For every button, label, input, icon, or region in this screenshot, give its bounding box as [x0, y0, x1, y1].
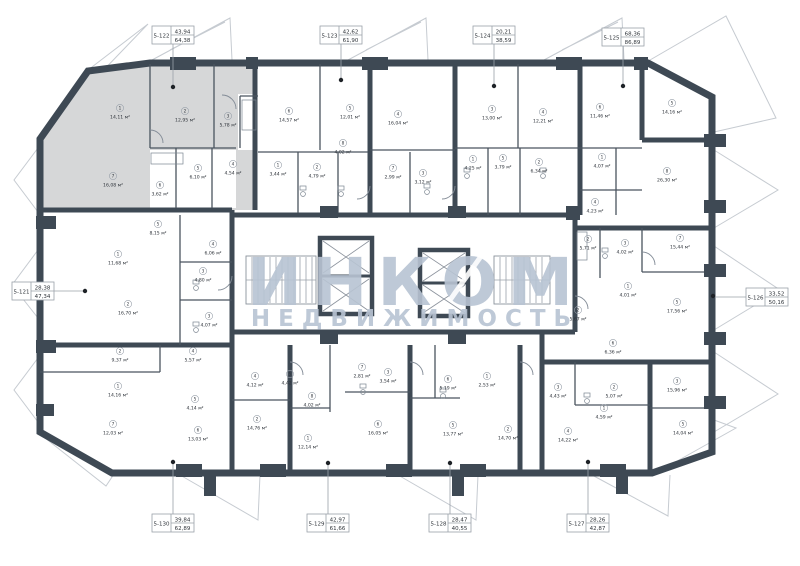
room-label: 214,70 м²: [498, 425, 518, 441]
svg-text:50,16: 50,16: [769, 300, 785, 306]
svg-text:4,02 м²: 4,02 м²: [335, 150, 352, 156]
room-label: 24,79 м²: [309, 163, 326, 179]
svg-text:14,16 м²: 14,16 м²: [108, 393, 128, 399]
room-label: 65,19 м²: [440, 375, 457, 391]
svg-text:11,68 м²: 11,68 м²: [108, 261, 128, 267]
svg-text:5-128: 5-128: [431, 521, 447, 527]
svg-text:6: 6: [377, 422, 380, 427]
room-label: 616,05 м²: [368, 420, 388, 436]
svg-text:4,02 м²: 4,02 м²: [304, 403, 321, 409]
svg-text:14,57 м²: 14,57 м²: [279, 118, 299, 124]
svg-text:5,19 м²: 5,19 м²: [440, 386, 457, 392]
svg-text:5: 5: [197, 166, 200, 171]
unit-callout-5-128[interactable]: 5-12828,4740,55: [429, 514, 471, 532]
svg-text:1: 1: [277, 163, 280, 168]
svg-text:20,21: 20,21: [496, 29, 512, 35]
svg-text:12,21 м²: 12,21 м²: [533, 119, 553, 125]
svg-text:4,01 м²: 4,01 м²: [620, 293, 637, 299]
svg-text:3: 3: [557, 385, 560, 390]
svg-text:3: 3: [676, 379, 679, 384]
room-label: 14,25 м²: [465, 155, 482, 171]
svg-text:62,89: 62,89: [175, 526, 191, 532]
room-label: 58,15 м²: [150, 220, 167, 236]
room-label: 46,06 м²: [205, 240, 222, 256]
svg-text:6: 6: [447, 377, 450, 382]
svg-text:1: 1: [627, 284, 630, 289]
svg-text:3,79 м²: 3,79 м²: [495, 165, 512, 171]
svg-text:4: 4: [254, 374, 257, 379]
svg-text:17,56 м²: 17,56 м²: [667, 309, 687, 315]
svg-text:2: 2: [316, 165, 319, 170]
room-label: 84,02 м²: [335, 139, 352, 155]
svg-text:6: 6: [612, 341, 615, 346]
svg-text:4,54 м²: 4,54 м²: [225, 171, 242, 177]
svg-text:13,03 м²: 13,03 м²: [188, 437, 208, 443]
svg-text:3: 3: [227, 114, 230, 119]
room-label: 712,03 м²: [103, 420, 123, 436]
unit-callout-5-127[interactable]: 5-12728,2642,87: [567, 514, 609, 532]
svg-text:1: 1: [603, 406, 606, 411]
svg-text:5: 5: [502, 156, 505, 161]
floor-plan: 114,11 м² 212,95 м² 35,78 м² 716,08 м² 6…: [0, 0, 800, 566]
svg-text:14,70 м²: 14,70 м²: [498, 436, 518, 442]
svg-text:2: 2: [507, 427, 510, 432]
svg-text:4: 4: [567, 429, 570, 434]
svg-text:1: 1: [307, 436, 310, 441]
room-label: 14,59 м²: [596, 404, 613, 420]
unit-callout-5-123[interactable]: 5-12342,6261,90: [320, 26, 362, 44]
unit-callout-5-121[interactable]: 5-12128,3847,34: [12, 282, 54, 300]
svg-text:61,90: 61,90: [343, 38, 359, 44]
room-label: 513,77 м²: [443, 421, 463, 437]
room-label: 14,01 м²: [620, 282, 637, 298]
svg-text:6: 6: [159, 183, 162, 188]
svg-text:14,16 м²: 14,16 м²: [662, 110, 682, 116]
room-label: 14,07 м²: [594, 153, 611, 169]
svg-text:5-123: 5-123: [322, 33, 338, 39]
svg-text:9,37 м²: 9,37 м²: [112, 358, 129, 364]
svg-text:14,11 м²: 14,11 м²: [110, 115, 130, 121]
room-label: 214,76 м²: [247, 415, 267, 431]
room-label: 45,57 м²: [185, 347, 202, 363]
svg-text:42,62: 42,62: [343, 29, 359, 35]
svg-text:2: 2: [613, 385, 616, 390]
svg-text:1: 1: [119, 106, 122, 111]
svg-text:43,94: 43,94: [175, 29, 191, 35]
svg-text:4,14 м²: 4,14 м²: [187, 406, 204, 412]
svg-text:1: 1: [117, 252, 120, 257]
svg-text:5: 5: [452, 423, 455, 428]
svg-text:5: 5: [289, 372, 292, 377]
svg-text:4: 4: [192, 349, 195, 354]
room-label: 12,53 м²: [479, 372, 496, 388]
svg-text:4,79 м²: 4,79 м²: [309, 174, 326, 180]
svg-text:5-124: 5-124: [475, 33, 491, 39]
svg-text:26,30 м²: 26,30 м²: [657, 178, 677, 184]
room-label: 512,01 м²: [340, 104, 360, 120]
svg-text:3,62 м²: 3,62 м²: [152, 192, 169, 198]
svg-text:4: 4: [212, 242, 215, 247]
svg-text:42,97: 42,97: [330, 517, 346, 523]
svg-text:6: 6: [599, 105, 602, 110]
svg-text:7: 7: [679, 236, 682, 241]
svg-text:4,12 м²: 4,12 м²: [247, 383, 264, 389]
svg-text:5,78 м²: 5,78 м²: [220, 123, 237, 129]
room-label: 614,57 м²: [279, 107, 299, 123]
svg-text:11,46 м²: 11,46 м²: [590, 114, 610, 120]
svg-text:3,54 м²: 3,54 м²: [380, 379, 397, 385]
room-label: 412,21 м²: [533, 108, 553, 124]
svg-text:5: 5: [676, 300, 679, 305]
svg-text:4: 4: [397, 112, 400, 117]
room-label: 613,03 м²: [188, 426, 208, 442]
unit-callout-5-124[interactable]: 5-12420,2138,59: [473, 26, 515, 44]
room-label: 66,36 м²: [605, 339, 622, 355]
floor-plan-page: 114,11 м² 212,95 м² 35,78 м² 716,08 м² 6…: [0, 0, 800, 566]
room-label: 25,07 м²: [606, 383, 623, 399]
room-label: 72,81 м²: [354, 363, 371, 379]
svg-text:12,95 м²: 12,95 м²: [175, 118, 195, 124]
svg-text:2: 2: [127, 302, 130, 307]
svg-text:8: 8: [666, 169, 669, 174]
svg-text:2,53 м²: 2,53 м²: [479, 383, 496, 389]
svg-text:5-129: 5-129: [309, 521, 325, 527]
svg-text:61,66: 61,66: [330, 526, 346, 532]
room-label: 315,96 м²: [667, 377, 687, 393]
svg-text:86,89: 86,89: [625, 40, 641, 46]
svg-text:3,12 м²: 3,12 м²: [415, 180, 432, 186]
svg-text:15,96 м²: 15,96 м²: [667, 388, 687, 394]
svg-text:4: 4: [232, 162, 235, 167]
room-label: 44,12 м²: [247, 372, 264, 388]
svg-text:16,04 м²: 16,04 м²: [388, 121, 408, 127]
svg-text:16,08 м²: 16,08 м²: [103, 183, 123, 189]
svg-text:38,59: 38,59: [496, 38, 512, 44]
svg-text:6: 6: [288, 109, 291, 114]
svg-text:7: 7: [361, 365, 364, 370]
svg-text:5-125: 5-125: [604, 35, 620, 41]
svg-text:5,07 м²: 5,07 м²: [606, 394, 623, 400]
room-label: 53,79 м²: [495, 154, 512, 170]
svg-text:64,38: 64,38: [175, 38, 191, 44]
svg-text:4,59 м²: 4,59 м²: [596, 415, 613, 421]
svg-text:14,22 м²: 14,22 м²: [558, 438, 578, 444]
unit-callout-5-125[interactable]: 5-12568,3686,89: [602, 28, 644, 46]
svg-text:6,10 м²: 6,10 м²: [190, 175, 207, 181]
svg-text:4: 4: [542, 110, 545, 115]
svg-text:4,25 м²: 4,25 м²: [465, 166, 482, 172]
room-label: 414,22 м²: [558, 427, 578, 443]
room-label: 826,30 м²: [657, 167, 677, 183]
svg-text:2: 2: [184, 109, 187, 114]
svg-text:6,34 м²: 6,34 м²: [531, 169, 548, 175]
svg-text:42,87: 42,87: [590, 526, 606, 532]
svg-text:2,99 м²: 2,99 м²: [385, 175, 402, 181]
svg-text:28,26: 28,26: [590, 517, 606, 523]
svg-text:5-122: 5-122: [154, 33, 170, 39]
unit-callout-5-130[interactable]: 5-13039,8462,89: [152, 514, 194, 532]
svg-text:5,57 м²: 5,57 м²: [185, 358, 202, 364]
svg-text:7: 7: [112, 422, 115, 427]
room-label: 72,99 м²: [385, 164, 402, 180]
svg-text:6: 6: [197, 428, 200, 433]
room-label: 514,16 м²: [662, 99, 682, 115]
svg-text:1: 1: [472, 157, 475, 162]
watermark: ИНКОМ НЕДВИЖИМОСТЬ: [247, 244, 583, 332]
room-label: 416,04 м²: [388, 110, 408, 126]
room-label: 313,00 м²: [482, 105, 502, 121]
svg-text:16,05 м²: 16,05 м²: [368, 431, 388, 437]
svg-text:12,01 м²: 12,01 м²: [340, 115, 360, 121]
svg-text:15,44 м²: 15,44 м²: [670, 245, 690, 251]
room-label: 715,44 м²: [670, 234, 690, 250]
room-label: 111,68 м²: [108, 250, 128, 266]
svg-text:3: 3: [491, 107, 494, 112]
svg-text:4,02 м²: 4,02 м²: [617, 250, 634, 256]
svg-text:НЕДВИЖИМОСТЬ: НЕДВИЖИМОСТЬ: [251, 306, 579, 332]
room-label: 517,56 м²: [667, 298, 687, 314]
svg-text:5: 5: [671, 101, 674, 106]
svg-text:3,44 м²: 3,44 м²: [270, 172, 287, 178]
svg-text:8: 8: [342, 141, 345, 146]
svg-text:3: 3: [202, 269, 205, 274]
svg-text:4,23 м²: 4,23 м²: [587, 209, 604, 215]
svg-text:5-121: 5-121: [14, 289, 30, 295]
svg-text:28,38: 28,38: [35, 285, 51, 291]
room-label: 34,02 м²: [617, 239, 634, 255]
svg-text:5: 5: [194, 397, 197, 402]
svg-text:5-130: 5-130: [154, 521, 170, 527]
svg-text:2: 2: [119, 349, 122, 354]
svg-text:5-127: 5-127: [569, 521, 585, 527]
svg-text:4: 4: [594, 200, 597, 205]
svg-text:4,07 м²: 4,07 м²: [594, 164, 611, 170]
svg-text:16,70 м²: 16,70 м²: [118, 311, 138, 317]
room-label: 33,54 м²: [380, 368, 397, 384]
svg-text:39,84: 39,84: [175, 517, 191, 523]
svg-text:4,07 м²: 4,07 м²: [201, 323, 218, 329]
svg-text:3: 3: [624, 241, 627, 246]
room-label: 29,37 м²: [112, 347, 129, 363]
svg-text:8: 8: [311, 394, 314, 399]
unit-callout-5-126[interactable]: 5-12633,5250,16: [746, 288, 788, 306]
room-label: 34,43 м²: [550, 383, 567, 399]
room-label: 33,12 м²: [415, 169, 432, 185]
svg-text:1: 1: [117, 384, 120, 389]
svg-text:6,36 м²: 6,36 м²: [605, 350, 622, 356]
room-label: 54,14 м²: [187, 395, 204, 411]
svg-text:4,43 м²: 4,43 м²: [550, 394, 567, 400]
svg-text:4,80 м²: 4,80 м²: [195, 278, 212, 284]
svg-text:5: 5: [682, 422, 685, 427]
svg-text:5-126: 5-126: [748, 295, 764, 301]
room-label: 514,04 м²: [673, 420, 693, 436]
room-label: 34,80 м²: [195, 267, 212, 283]
unit-callout-5-122[interactable]: 5-12243,9464,38: [152, 26, 194, 44]
svg-text:3: 3: [208, 314, 211, 319]
room-label: 112,14 м²: [298, 434, 318, 450]
room-label: 84,02 м²: [304, 392, 321, 408]
room-label: 44,23 м²: [587, 198, 604, 214]
svg-text:33,52: 33,52: [769, 291, 785, 297]
svg-text:2: 2: [538, 160, 541, 165]
room-label: 26,34 м²: [531, 158, 548, 174]
svg-text:40,55: 40,55: [452, 526, 468, 532]
room-label: 114,16 м²: [108, 382, 128, 398]
room-label: 34,07 м²: [201, 312, 218, 328]
svg-text:68,36: 68,36: [625, 31, 641, 37]
svg-text:4,42 м²: 4,42 м²: [282, 381, 299, 387]
svg-text:47,34: 47,34: [35, 294, 51, 300]
svg-text:6,06 м²: 6,06 м²: [205, 251, 222, 257]
svg-text:13,77 м²: 13,77 м²: [443, 432, 463, 438]
svg-text:3: 3: [387, 370, 390, 375]
svg-text:5: 5: [157, 222, 160, 227]
svg-text:2: 2: [587, 237, 590, 242]
svg-text:2,81 м²: 2,81 м²: [354, 374, 371, 380]
svg-text:5: 5: [349, 106, 352, 111]
room-label: 13,44 м²: [270, 161, 287, 177]
svg-text:28,47: 28,47: [452, 517, 468, 523]
svg-text:7: 7: [392, 166, 395, 171]
svg-text:14,04 м²: 14,04 м²: [673, 431, 693, 437]
svg-text:8,15 м²: 8,15 м²: [150, 231, 167, 237]
svg-text:14,76 м²: 14,76 м²: [247, 426, 267, 432]
svg-text:12,03 м²: 12,03 м²: [103, 431, 123, 437]
svg-text:2: 2: [256, 417, 259, 422]
room-label: 611,46 м²: [590, 103, 610, 119]
svg-text:7: 7: [112, 174, 115, 179]
unit-callout-5-129[interactable]: 5-12942,9761,66: [307, 514, 349, 532]
room-label: 216,70 м²: [118, 300, 138, 316]
svg-text:3: 3: [422, 171, 425, 176]
svg-text:1: 1: [486, 374, 489, 379]
svg-text:12,14 м²: 12,14 м²: [298, 445, 318, 451]
svg-text:13,00 м²: 13,00 м²: [482, 116, 502, 122]
svg-text:1: 1: [601, 155, 604, 160]
